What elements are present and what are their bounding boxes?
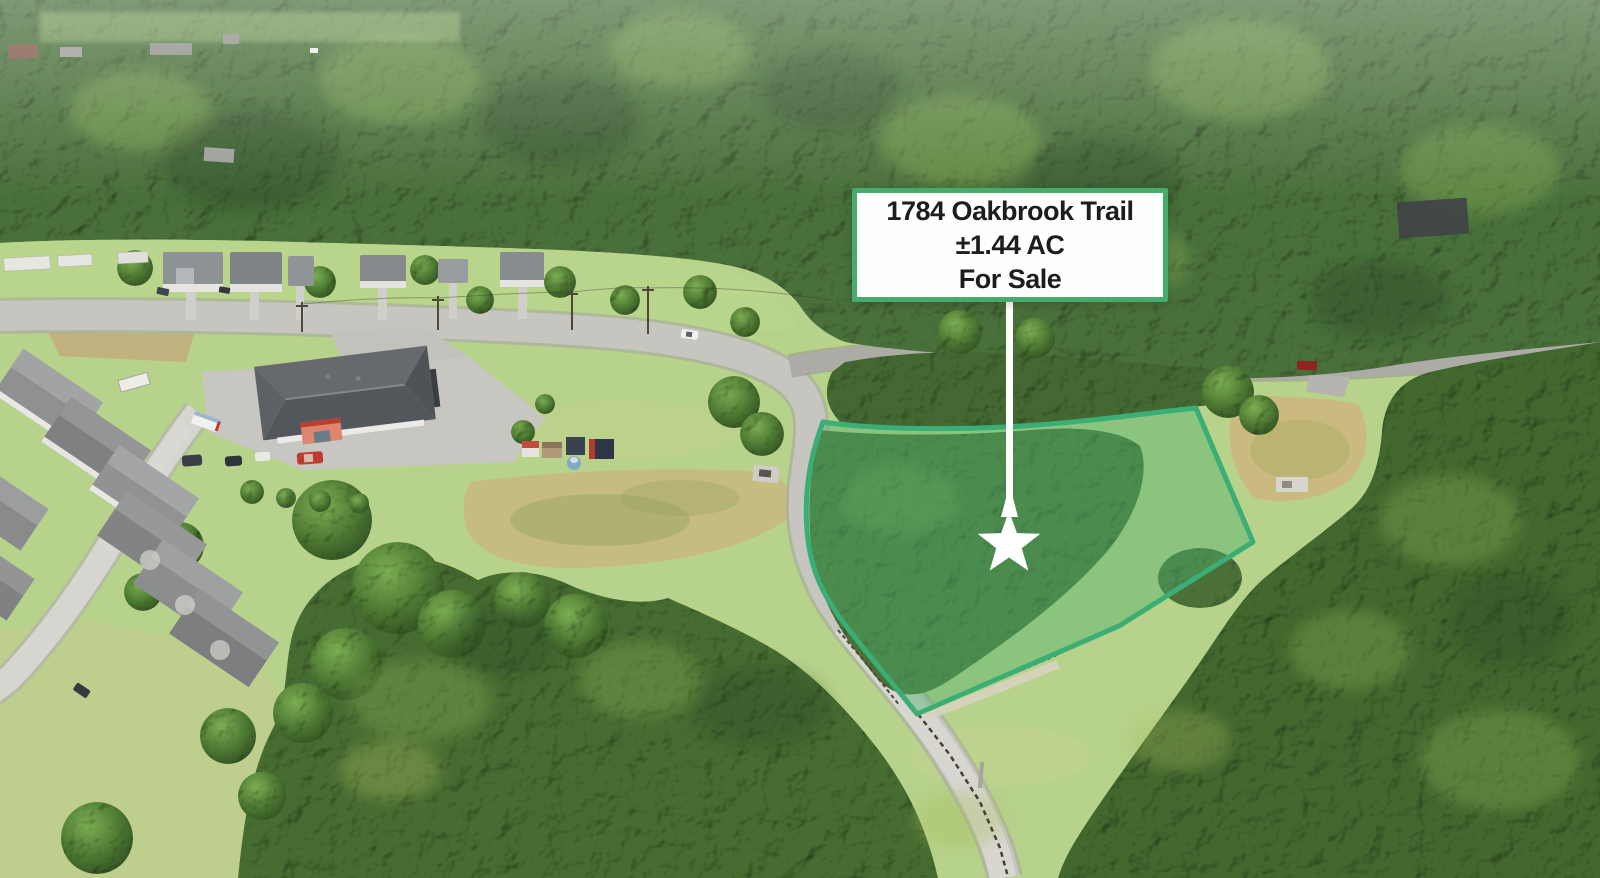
shed [522,441,539,457]
listing-acreage: ±1.44 AC [956,228,1065,262]
listing-label-card: 1784 Oakbrook Trail ±1.44 AC For Sale [852,188,1168,302]
shed [566,437,585,455]
dark-car [225,455,243,466]
culvert [752,465,780,484]
red-car [297,451,324,465]
white-car [255,451,271,461]
shed [589,439,614,459]
aerial-photo: 1784 Oakbrook Trail ±1.44 AC For Sale [0,0,1600,878]
listing-status: For Sale [959,262,1062,296]
grain-hopper [567,456,581,470]
listing-address: 1784 Oakbrook Trail [886,194,1133,228]
red-car-on-road [1297,361,1317,371]
shed [542,442,562,458]
pointer-line [1006,300,1013,500]
dark-car [182,454,203,466]
aerial-scene [0,0,1600,878]
haze-overlay [0,0,1600,200]
